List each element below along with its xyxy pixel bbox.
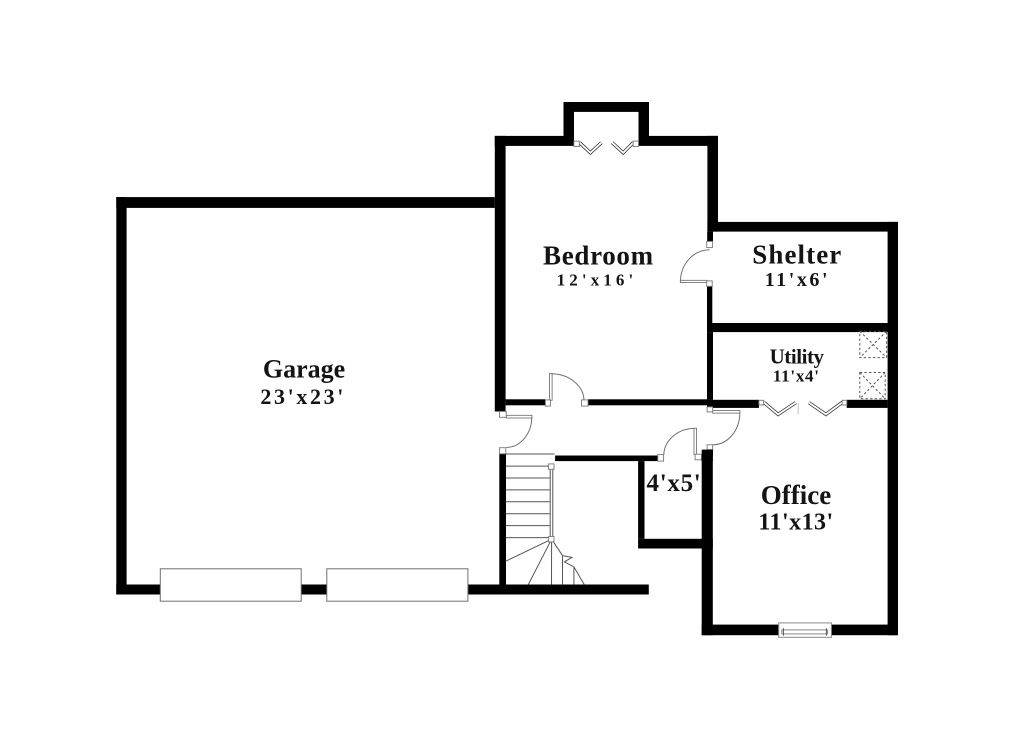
- svg-text:23'x23': 23'x23': [260, 384, 346, 409]
- svg-text:Utility: Utility: [770, 345, 825, 369]
- svg-text:Shelter: Shelter: [752, 240, 842, 270]
- svg-text:4'x5': 4'x5': [647, 470, 702, 497]
- svg-text:11'x13': 11'x13': [758, 510, 833, 536]
- svg-text:Garage: Garage: [263, 355, 345, 384]
- svg-text:11'x4': 11'x4': [773, 366, 820, 385]
- svg-text:12'x16': 12'x16': [557, 270, 638, 289]
- svg-text:Office: Office: [761, 480, 831, 510]
- svg-text:11'x6': 11'x6': [765, 269, 830, 291]
- svg-text:Bedroom: Bedroom: [543, 241, 654, 271]
